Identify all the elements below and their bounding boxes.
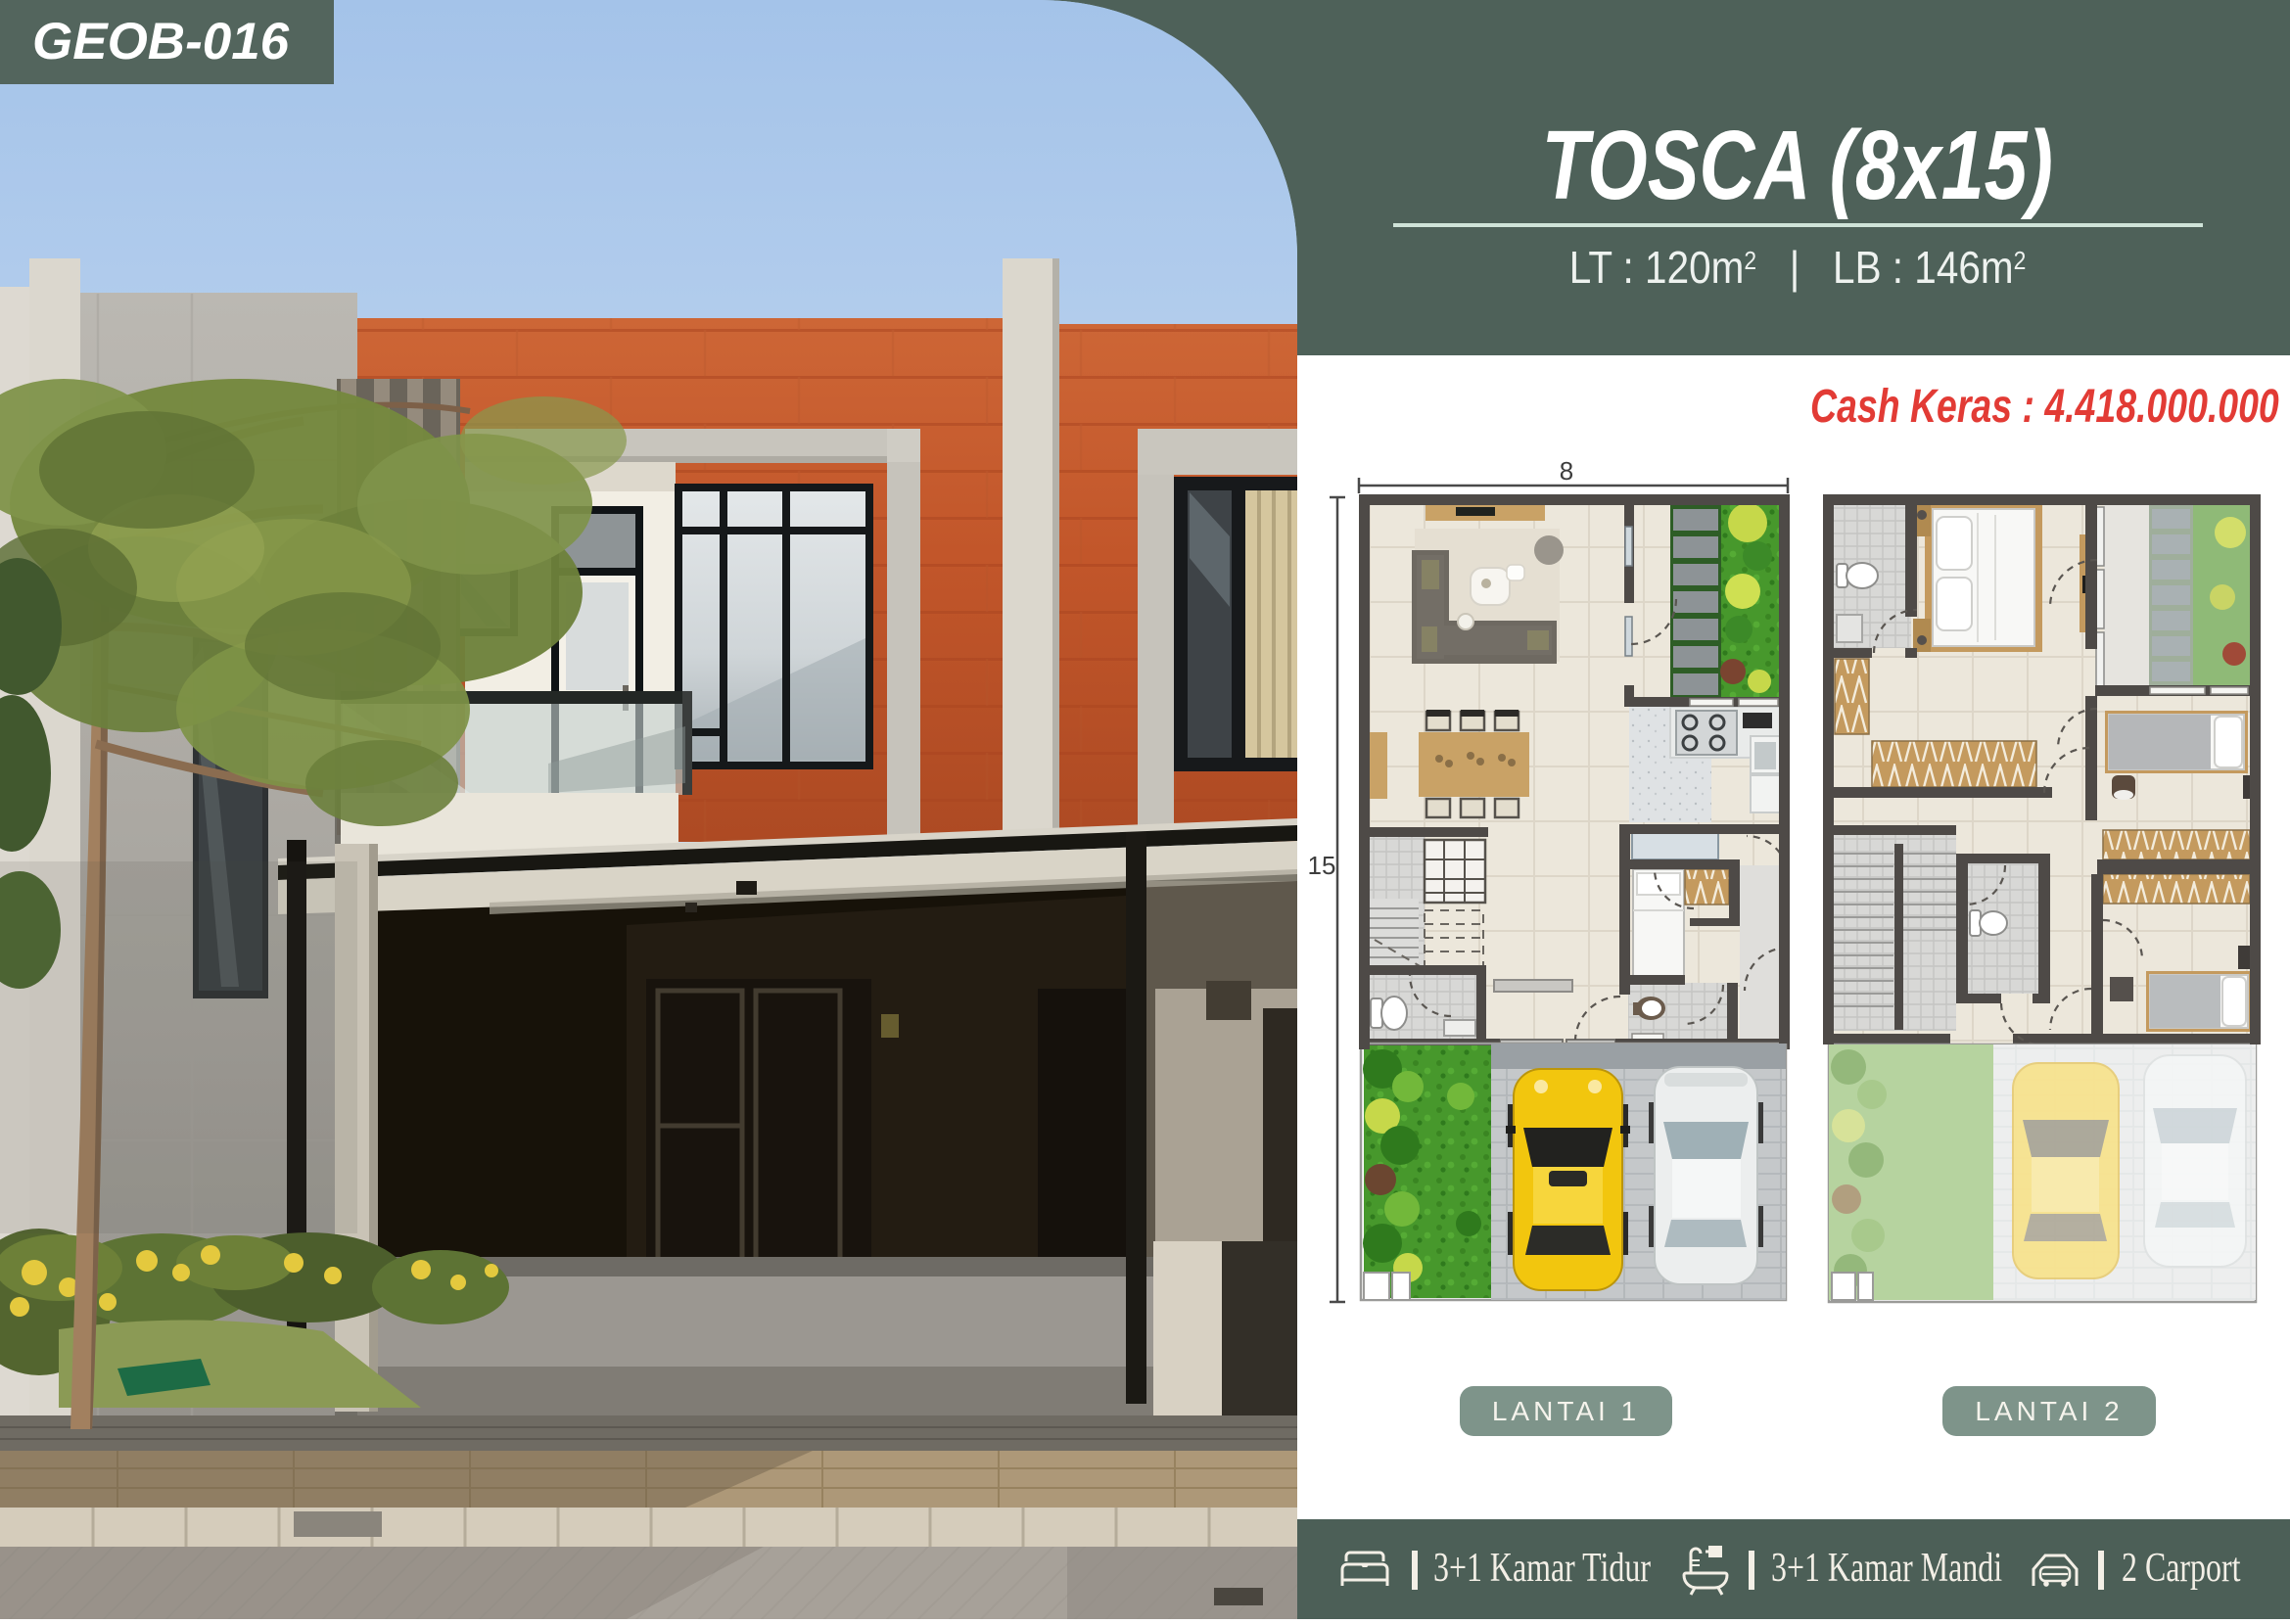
- svg-text:15: 15: [1308, 851, 1336, 880]
- svg-text:8: 8: [1560, 456, 1573, 486]
